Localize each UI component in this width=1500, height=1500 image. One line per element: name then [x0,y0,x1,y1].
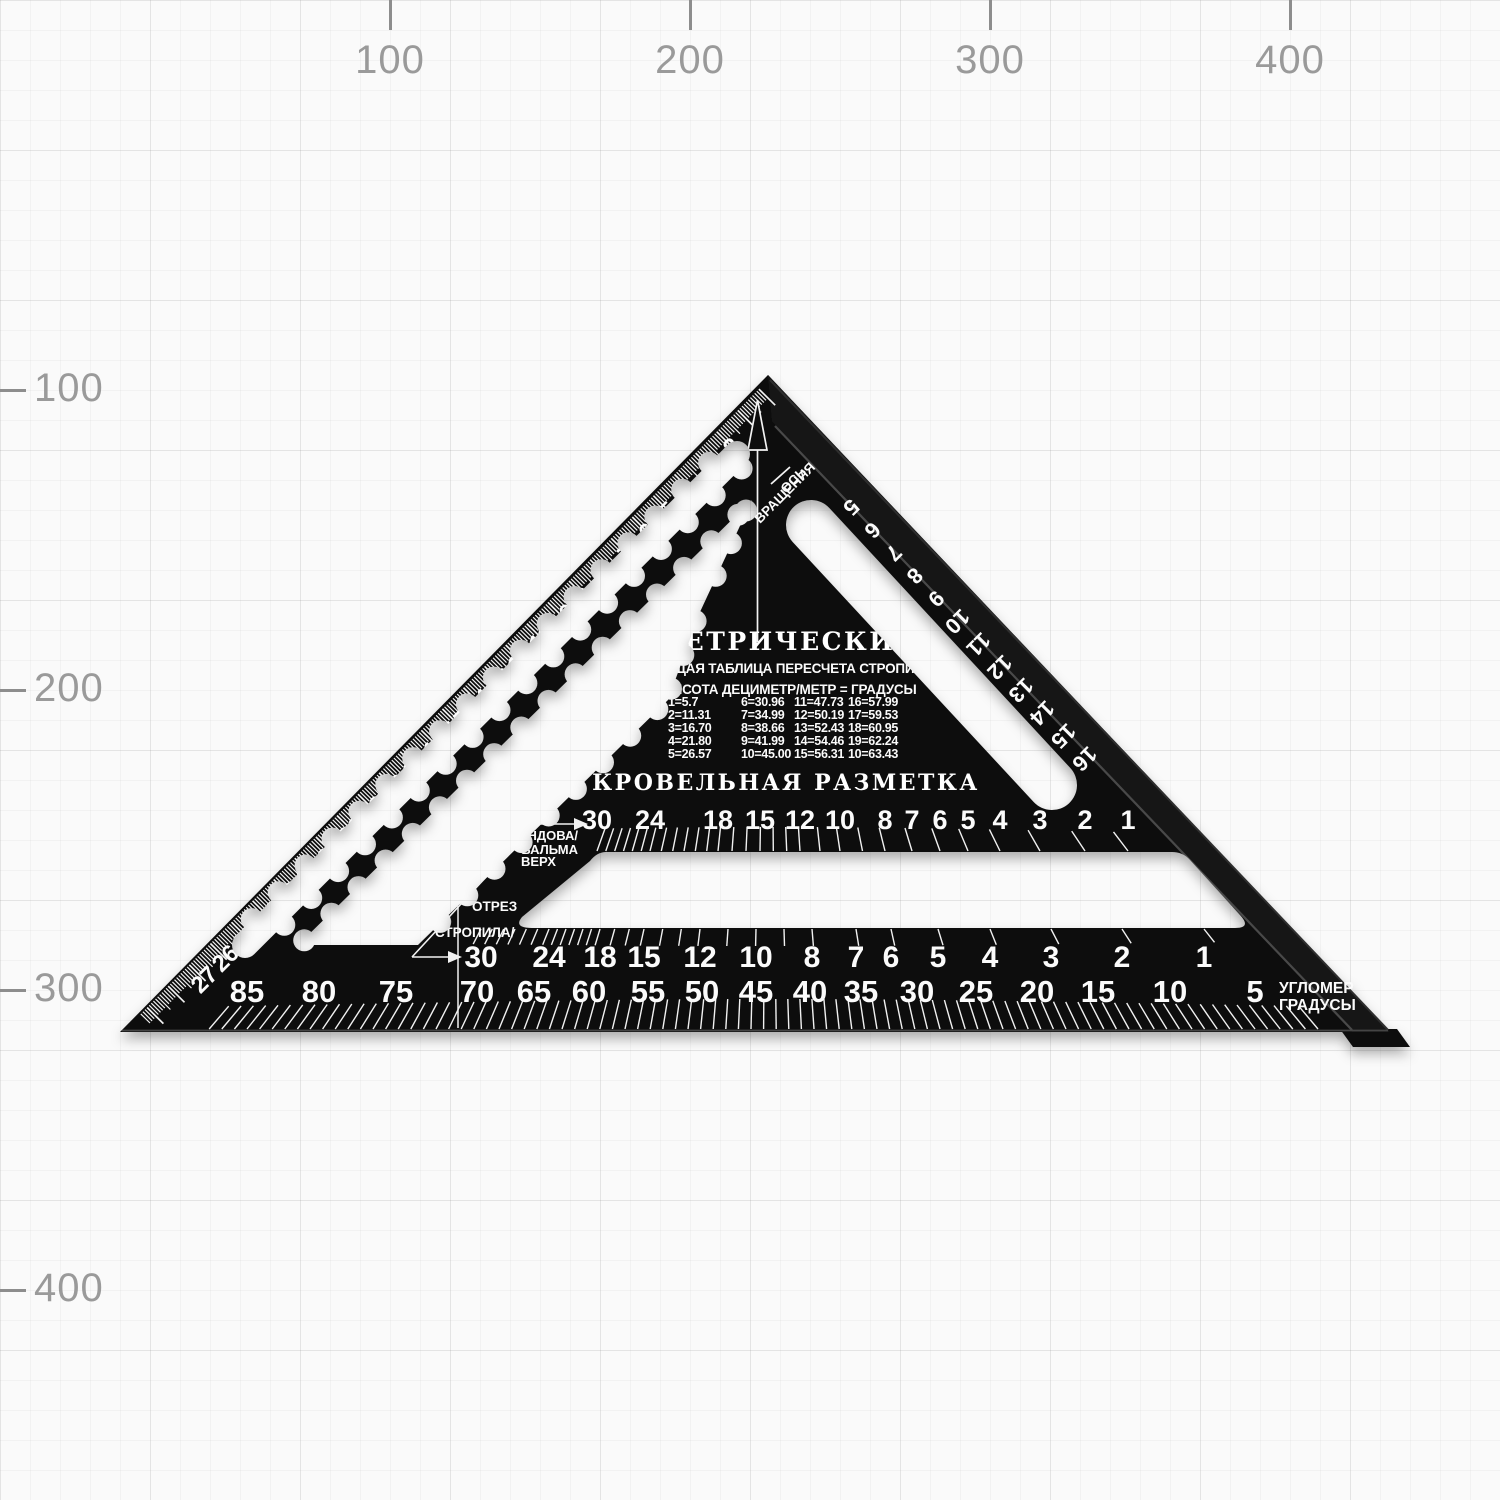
protractor-label-line2: ГРАДУСЫ [1279,997,1356,1014]
table-cell: 4=21.80 [668,734,712,748]
degree-number: 65 [517,974,551,1009]
roof-top-number: 5 [960,805,975,835]
left-axis-label: 400 [34,1266,104,1311]
degree-number: 25 [959,974,993,1009]
roof-bottom-number: 15 [627,941,660,974]
top-axis-label: 100 [330,38,450,83]
roof-bottom-number: 30 [464,941,497,974]
degree-number: 50 [685,974,719,1009]
table-cell: 15=56.31 [794,747,844,761]
top-axis-tick [689,0,692,30]
roof-bottom-number: 4 [982,941,999,974]
roof-bottom-number: 10 [739,941,772,974]
table-cell: 3=16.70 [668,721,712,735]
degree-number: 5 [1246,974,1263,1009]
roof-top-number: 6 [932,805,947,835]
degree-number: 75 [379,974,413,1009]
degree-scale-numbers: 858075706560555045403530252015105 [230,974,1264,1009]
roof-top-number: 10 [825,805,855,835]
speed-square: 2345678910111213141516171819202122232425… [0,0,1500,1500]
degree-number: 20 [1020,974,1054,1009]
table-cell: 11=47.73 [794,695,844,709]
left-axis-label: 100 [34,366,104,411]
table-cell: 10=63.43 [848,747,898,761]
left-axis-tick [0,689,26,692]
table-cell: 18=60.95 [848,721,898,735]
roof-bottom-number: 7 [848,941,865,974]
roof-bottom-number: 8 [804,941,821,974]
table-cell: 8=38.66 [741,721,785,735]
roof-bottom-number: 2 [1114,941,1131,974]
roof-top-number: 4 [992,805,1007,835]
left-axis-tick [0,389,26,392]
roofing-title: КРОВЕЛЬНАЯ РАЗМЕТКА [592,770,980,796]
left-axis-tick [0,1289,26,1292]
roof-top-number: 24 [635,805,665,835]
valley-label-line3: ВЕРХ [521,854,556,869]
roof-top-number: 18 [703,805,733,835]
table-cell: 16=57.99 [848,695,898,709]
rafter-label: СТРОПИЛА/ [435,925,515,940]
table-cell: 6=30.96 [741,695,785,709]
degree-number: 45 [739,974,773,1009]
roof-top-number: 7 [904,805,919,835]
degree-number: 70 [460,974,494,1009]
degree-number: 30 [900,974,934,1009]
square-body-group: 2345678910111213141516171819202122232425… [120,375,1410,1047]
roof-bottom-number: 1 [1196,941,1213,974]
metric-title: МЕТРИЧЕСКИЙ [654,625,921,656]
top-axis-label: 400 [1230,38,1350,83]
left-axis-label: 300 [34,966,104,1011]
tick-mark [788,999,789,1029]
roof-top-number: 15 [745,805,775,835]
roof-bottom-number: 12 [683,941,716,974]
table-cell: 14=54.46 [794,734,844,748]
roof-top-number: 30 [582,805,612,835]
roof-top-number: 8 [877,805,892,835]
roof-bottom-number: 3 [1043,941,1060,974]
roof-bottom-number: 24 [532,941,566,974]
top-axis-label: 200 [630,38,750,83]
roof-top-number: 2 [1077,805,1092,835]
degree-number: 35 [844,974,878,1009]
left-axis-label: 200 [34,666,104,711]
table-subtitle-1: ОБЩАЯ ТАБЛИЦА ПЕРЕСЧЕТА СТРОПИЛ [652,661,923,676]
degree-number: 85 [230,974,264,1009]
degree-number: 15 [1081,974,1115,1009]
table-cell: 2=11.31 [668,708,711,722]
top-axis-tick [389,0,392,30]
table-cell: 12=50.19 [794,708,844,722]
cut-label: ОТРЕЗ [472,899,517,914]
table-cell: 13=52.43 [794,721,844,735]
top-axis-tick [1289,0,1292,30]
degree-number: 80 [302,974,336,1009]
roof-bottom-number: 18 [583,941,616,974]
degree-number: 40 [793,974,827,1009]
top-axis-tick [989,0,992,30]
degree-number: 55 [631,974,665,1009]
roof-bottom-number: 6 [883,941,900,974]
degree-number: 10 [1153,974,1187,1009]
valley-label-line1: ЕНДОВА/ [519,828,579,843]
table-subtitle-2: ВЫСОТА ДЕЦИМЕТР/МЕТР = ГРАДУСЫ [660,682,917,697]
left-axis-tick [0,989,26,992]
table-cell: 7=34.99 [741,708,785,722]
tick-mark [784,929,785,946]
degree-number: 60 [572,974,606,1009]
table-cell: 5=26.57 [668,747,712,761]
roof-top-number: 1 [1120,805,1135,835]
roof-top-number: 12 [785,805,815,835]
top-axis-label: 300 [930,38,1050,83]
roof-bottom-number: 5 [930,941,947,974]
graph-paper-scene: 100200300400 100200300400 [0,0,1500,1500]
table-cell: 17=59.53 [848,708,898,722]
table-cell: 10=45.00 [741,747,791,761]
roof-top-number: 3 [1032,805,1047,835]
table-cell: 1=5.7 [668,695,698,709]
protractor-label-line1: УГЛОМЕР [1279,980,1354,997]
table-cell: 19=62.24 [848,734,898,748]
table-cell: 9=41.99 [741,734,785,748]
